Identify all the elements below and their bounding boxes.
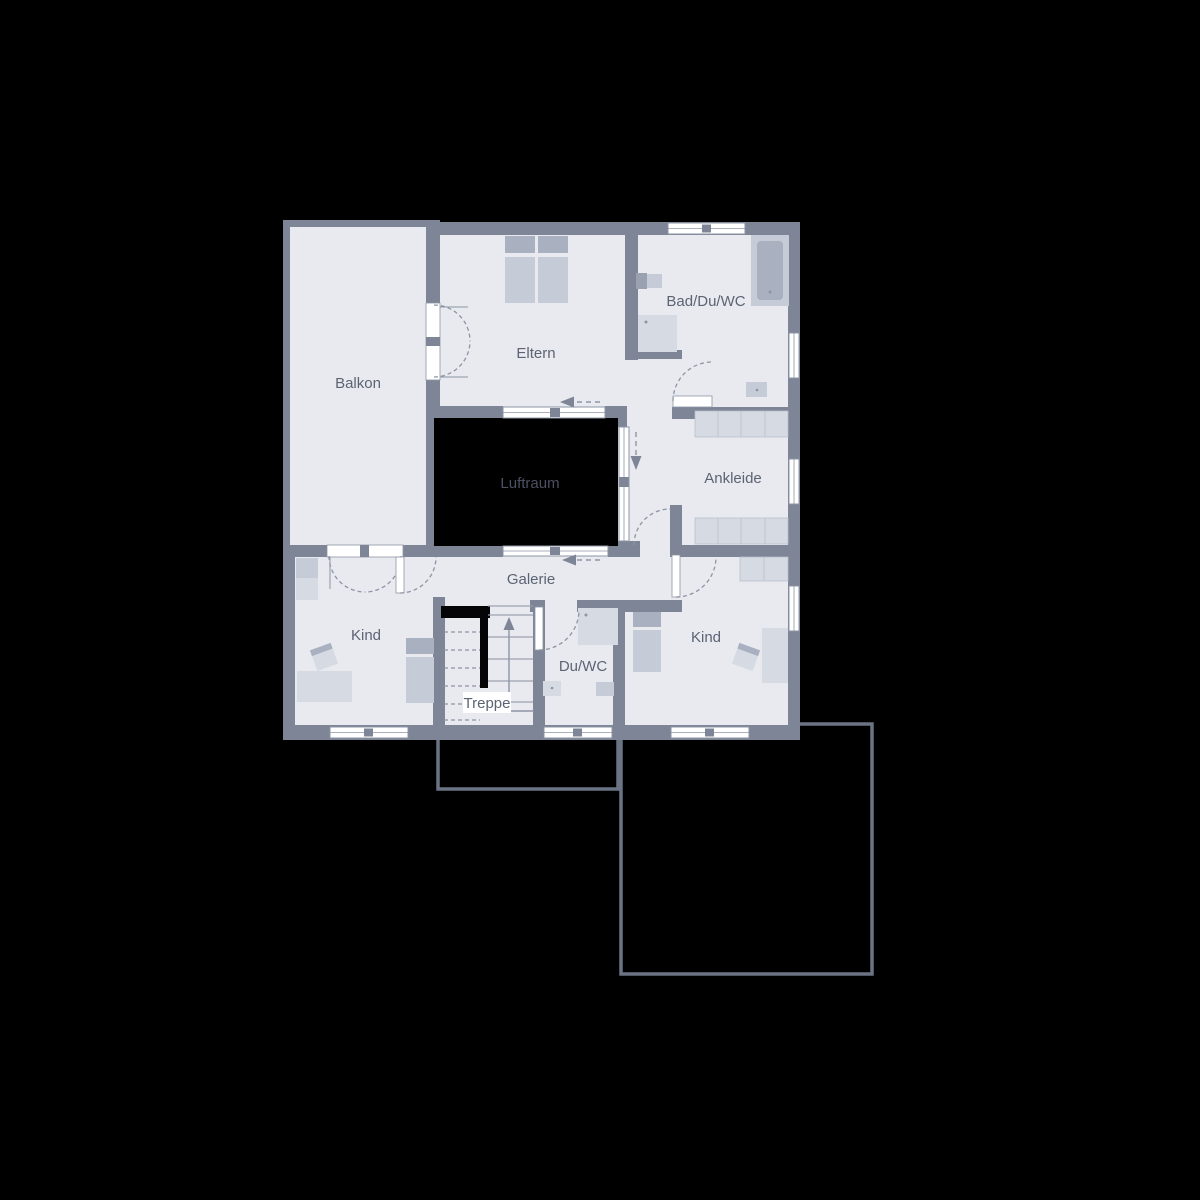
bed-kid-left	[406, 638, 434, 703]
wardrobe-row	[695, 518, 788, 544]
room-label-duwc: Du/WC	[559, 658, 608, 675]
washbasin	[746, 382, 767, 397]
shelf	[296, 558, 318, 600]
room-luftraum: Luftraum	[434, 407, 629, 556]
room-label-luftraum: Luftraum	[500, 475, 559, 492]
bathtub	[751, 235, 789, 306]
window	[789, 586, 799, 631]
window	[544, 727, 612, 738]
wardrobe-row	[695, 411, 788, 437]
floor-plan-page: Luftraum	[0, 0, 1200, 1200]
room-label-eltern: Eltern	[516, 345, 555, 362]
window	[789, 459, 799, 504]
room-label-balkon: Balkon	[335, 375, 381, 392]
room-label-bad: Bad/Du/WC	[666, 293, 745, 310]
window	[668, 223, 745, 234]
bed-kid-right	[633, 612, 661, 672]
room-label-kind-left: Kind	[351, 627, 381, 644]
toilet	[543, 681, 561, 696]
desk	[762, 628, 788, 683]
shower	[578, 608, 618, 645]
washbasin	[596, 682, 614, 696]
wardrobe	[740, 557, 788, 581]
room-label-ankleide: Ankleide	[704, 470, 762, 487]
desk	[297, 671, 352, 702]
floor-plan-drawing: Luftraum	[0, 0, 1200, 1200]
room-label-treppe: Treppe	[464, 695, 511, 712]
shower	[638, 315, 677, 352]
window	[789, 333, 799, 378]
toilet	[636, 273, 662, 289]
room-label-galerie: Galerie	[507, 571, 555, 588]
window	[330, 727, 408, 738]
window	[671, 727, 749, 738]
room-label-kind-right: Kind	[691, 629, 721, 646]
